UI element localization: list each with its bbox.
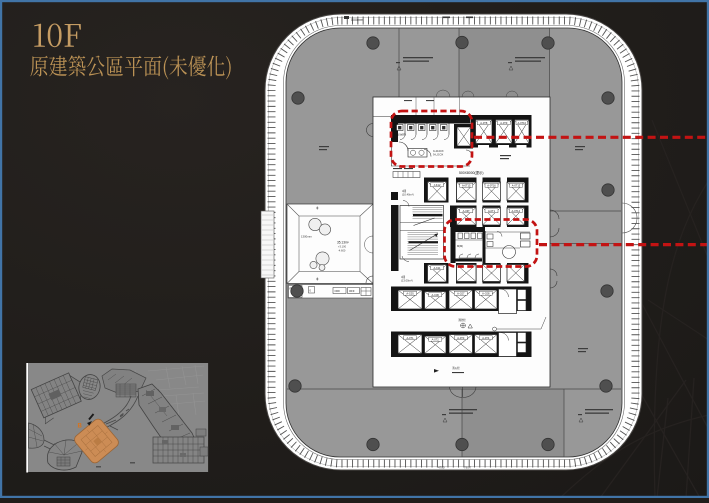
svg-text:消防栓: 消防栓 xyxy=(458,318,466,322)
svg-text:+3.100: +3.100 xyxy=(338,245,347,249)
svg-text:(10.40m²): (10.40m²) xyxy=(402,193,414,197)
svg-text:A-C06: A-C06 xyxy=(432,293,440,297)
svg-text:4間: 4間 xyxy=(401,275,405,279)
svg-text:(13.00m²): (13.00m²) xyxy=(401,279,413,283)
svg-text:消火栓: 消火栓 xyxy=(452,366,460,370)
svg-text:M(M): M(M) xyxy=(457,244,463,248)
svg-text:A-0T8: A-0T8 xyxy=(480,121,488,125)
svg-text:A-C07: A-C07 xyxy=(457,291,465,295)
svg-text:A-0T9: A-0T9 xyxy=(500,121,508,125)
svg-text:A-0T15: A-0T15 xyxy=(462,183,471,187)
svg-text:A-0T16: A-0T16 xyxy=(487,183,496,187)
svg-text:A-0T1: A-0T1 xyxy=(406,336,414,340)
svg-text:A-C08: A-C08 xyxy=(482,291,490,295)
svg-text:500X8000(提示): 500X8000(提示) xyxy=(459,170,484,175)
svg-text:1300mm: 1300mm xyxy=(301,235,313,239)
svg-text:A-0T4: A-0T4 xyxy=(482,336,490,340)
svg-text:A-03T: A-03T xyxy=(463,209,470,213)
svg-text:OFF: OFF xyxy=(335,289,341,293)
svg-text:35.13m²: 35.13m² xyxy=(337,241,349,245)
svg-text:A-0T1: A-0T1 xyxy=(488,209,496,213)
svg-text:500mm: 500mm xyxy=(351,18,363,22)
svg-text:4間: 4間 xyxy=(402,189,406,193)
svg-text:A-0T13: A-0T13 xyxy=(512,183,521,187)
svg-text:A-C05: A-C05 xyxy=(406,291,414,295)
svg-text:A-0T3: A-0T3 xyxy=(457,336,465,340)
svg-text:A-0T14: A-0T14 xyxy=(512,209,521,213)
svg-text:9-LOOX: 9-LOOX xyxy=(433,153,443,157)
svg-text:LW(F): LW(F) xyxy=(398,133,406,137)
svg-text:-4.600: -4.600 xyxy=(338,249,346,253)
svg-text:A-0T2: A-0T2 xyxy=(432,337,440,341)
svg-text:A-K11: A-K11 xyxy=(433,266,441,270)
svg-text:780/7: 780/7 xyxy=(464,466,472,470)
svg-text:4700: 4700 xyxy=(438,466,445,470)
svg-text:J-K12: J-K12 xyxy=(434,183,441,187)
svg-text:OFF: OFF xyxy=(349,289,355,293)
svg-text:B: B xyxy=(78,424,83,430)
svg-text:A-0T10: A-0T10 xyxy=(518,121,527,125)
